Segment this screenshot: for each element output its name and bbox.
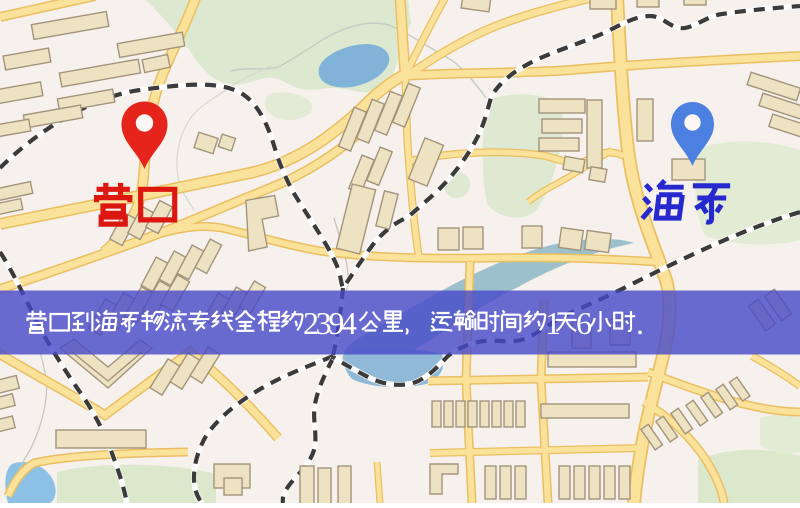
svg-text:1: 1 xyxy=(545,305,561,341)
svg-text:6: 6 xyxy=(576,305,592,341)
svg-text:2394: 2394 xyxy=(303,305,357,341)
svg-text:.: . xyxy=(636,305,644,341)
